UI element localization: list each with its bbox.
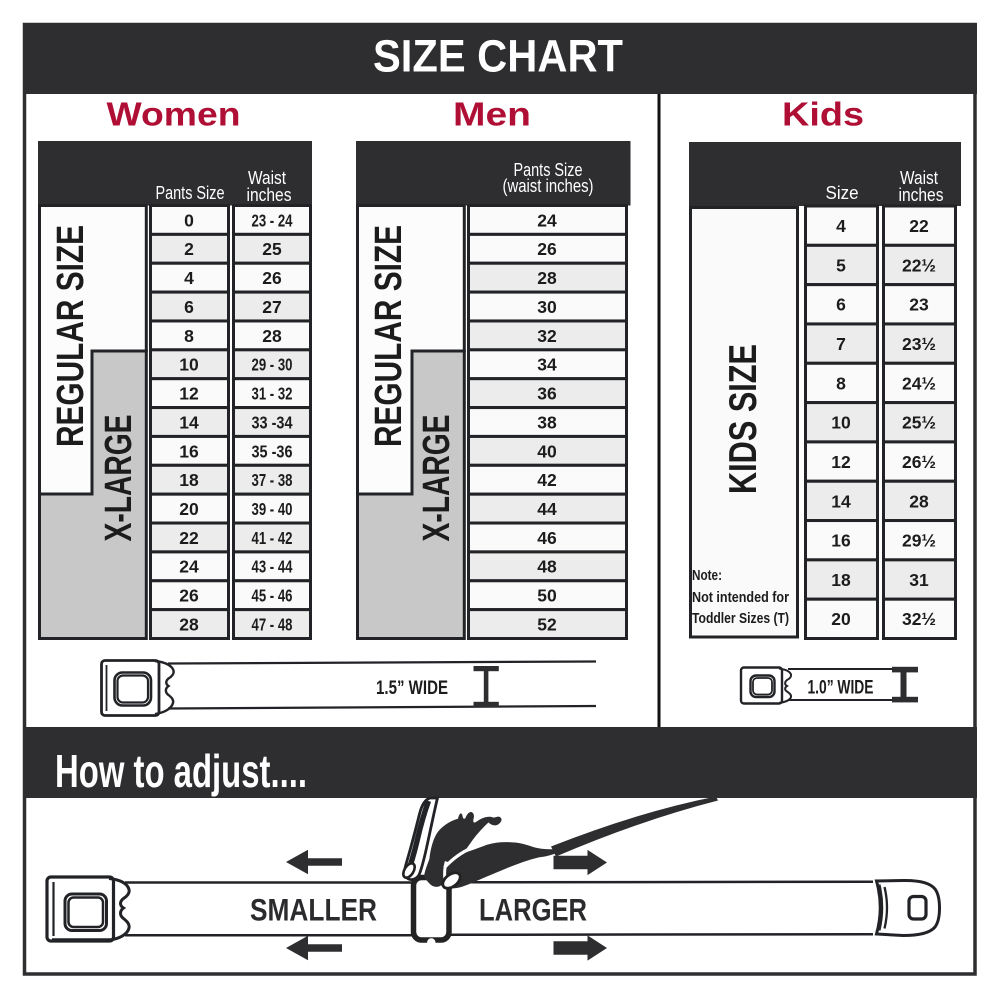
- svg-text:SMALLER: SMALLER: [250, 892, 377, 928]
- svg-text:12: 12: [831, 452, 851, 472]
- svg-text:34: 34: [537, 355, 557, 375]
- svg-text:24½: 24½: [902, 373, 936, 393]
- svg-text:10: 10: [179, 355, 199, 375]
- svg-text:35 -36: 35 -36: [252, 441, 293, 461]
- svg-text:Note:: Note:: [692, 567, 722, 584]
- svg-text:22: 22: [909, 216, 929, 236]
- svg-text:4: 4: [836, 216, 846, 236]
- svg-text:1.5” WIDE: 1.5” WIDE: [376, 677, 448, 699]
- svg-text:23½: 23½: [902, 334, 936, 354]
- svg-text:24: 24: [179, 557, 199, 577]
- svg-text:26½: 26½: [902, 452, 936, 472]
- svg-text:28: 28: [179, 615, 199, 635]
- svg-text:16: 16: [831, 531, 851, 551]
- svg-text:30: 30: [537, 297, 557, 317]
- svg-text:48: 48: [537, 557, 557, 577]
- svg-text:inches: inches: [899, 185, 944, 205]
- svg-text:29½: 29½: [902, 531, 936, 551]
- svg-text:X-LARGE: X-LARGE: [416, 415, 458, 542]
- svg-text:8: 8: [184, 326, 194, 346]
- svg-text:SIZE CHART: SIZE CHART: [373, 31, 623, 82]
- svg-text:25½: 25½: [902, 413, 936, 433]
- svg-text:43 - 44: 43 - 44: [252, 557, 293, 577]
- svg-text:36: 36: [537, 384, 557, 404]
- svg-text:6: 6: [836, 295, 846, 315]
- svg-text:18: 18: [179, 470, 199, 490]
- svg-text:Kids: Kids: [782, 96, 864, 133]
- svg-text:20: 20: [179, 499, 199, 519]
- svg-text:14: 14: [179, 412, 199, 432]
- svg-text:31 - 32: 31 - 32: [252, 384, 293, 404]
- svg-text:Not intended for: Not intended for: [692, 589, 789, 606]
- svg-text:27: 27: [262, 297, 281, 317]
- svg-text:LARGER: LARGER: [479, 892, 587, 928]
- svg-text:REGULAR SIZE: REGULAR SIZE: [368, 225, 410, 447]
- svg-text:47 - 48: 47 - 48: [252, 615, 293, 635]
- svg-text:38: 38: [537, 412, 557, 432]
- svg-text:23 - 24: 23 - 24: [252, 210, 293, 230]
- svg-text:32: 32: [537, 326, 557, 346]
- svg-text:24: 24: [537, 210, 557, 230]
- svg-text:50: 50: [537, 586, 557, 606]
- svg-text:16: 16: [179, 441, 199, 461]
- svg-text:40: 40: [537, 441, 557, 461]
- svg-text:31: 31: [909, 570, 929, 590]
- svg-text:Size: Size: [826, 183, 859, 203]
- svg-text:KIDS SIZE: KIDS SIZE: [722, 344, 765, 494]
- svg-text:6: 6: [184, 297, 194, 317]
- svg-text:26: 26: [537, 239, 557, 259]
- svg-text:20: 20: [831, 609, 851, 629]
- svg-text:Women: Women: [107, 96, 241, 133]
- svg-text:28: 28: [262, 326, 282, 346]
- svg-text:32½: 32½: [902, 609, 936, 629]
- svg-text:39 - 40: 39 - 40: [252, 499, 293, 519]
- svg-text:33 -34: 33 -34: [252, 412, 293, 432]
- svg-text:42: 42: [537, 470, 557, 490]
- svg-text:Pants Size: Pants Size: [156, 183, 225, 203]
- svg-text:14: 14: [831, 491, 851, 511]
- svg-text:23: 23: [909, 295, 929, 315]
- svg-text:(waist inches): (waist inches): [503, 176, 594, 196]
- svg-text:REGULAR SIZE: REGULAR SIZE: [50, 225, 92, 447]
- svg-text:37 - 38: 37 - 38: [252, 470, 293, 490]
- svg-text:44: 44: [537, 499, 557, 519]
- svg-text:10: 10: [831, 413, 851, 433]
- svg-text:4: 4: [184, 268, 194, 288]
- svg-text:7: 7: [836, 334, 846, 354]
- svg-text:26: 26: [262, 268, 282, 288]
- svg-text:18: 18: [831, 570, 851, 590]
- svg-text:8: 8: [836, 373, 846, 393]
- svg-text:29 - 30: 29 - 30: [252, 355, 293, 375]
- svg-text:5: 5: [836, 255, 846, 275]
- svg-text:2: 2: [184, 239, 194, 259]
- svg-text:12: 12: [179, 384, 199, 404]
- svg-text:25: 25: [262, 239, 282, 259]
- svg-text:X-LARGE: X-LARGE: [98, 415, 140, 542]
- svg-text:41 - 42: 41 - 42: [252, 528, 293, 548]
- svg-text:inches: inches: [247, 185, 292, 205]
- svg-text:28: 28: [909, 491, 929, 511]
- svg-text:28: 28: [537, 268, 557, 288]
- svg-text:Men: Men: [453, 96, 531, 133]
- svg-text:26: 26: [179, 586, 199, 606]
- svg-text:Toddler Sizes (T): Toddler Sizes (T): [692, 610, 789, 627]
- svg-text:46: 46: [537, 528, 557, 548]
- svg-text:52: 52: [537, 615, 557, 635]
- svg-text:45 - 46: 45 - 46: [252, 586, 293, 606]
- svg-text:How to adjust....: How to adjust....: [55, 745, 307, 797]
- svg-text:22½: 22½: [902, 255, 936, 275]
- svg-text:22: 22: [179, 528, 199, 548]
- svg-text:0: 0: [184, 210, 194, 230]
- svg-text:1.0” WIDE: 1.0” WIDE: [808, 678, 874, 699]
